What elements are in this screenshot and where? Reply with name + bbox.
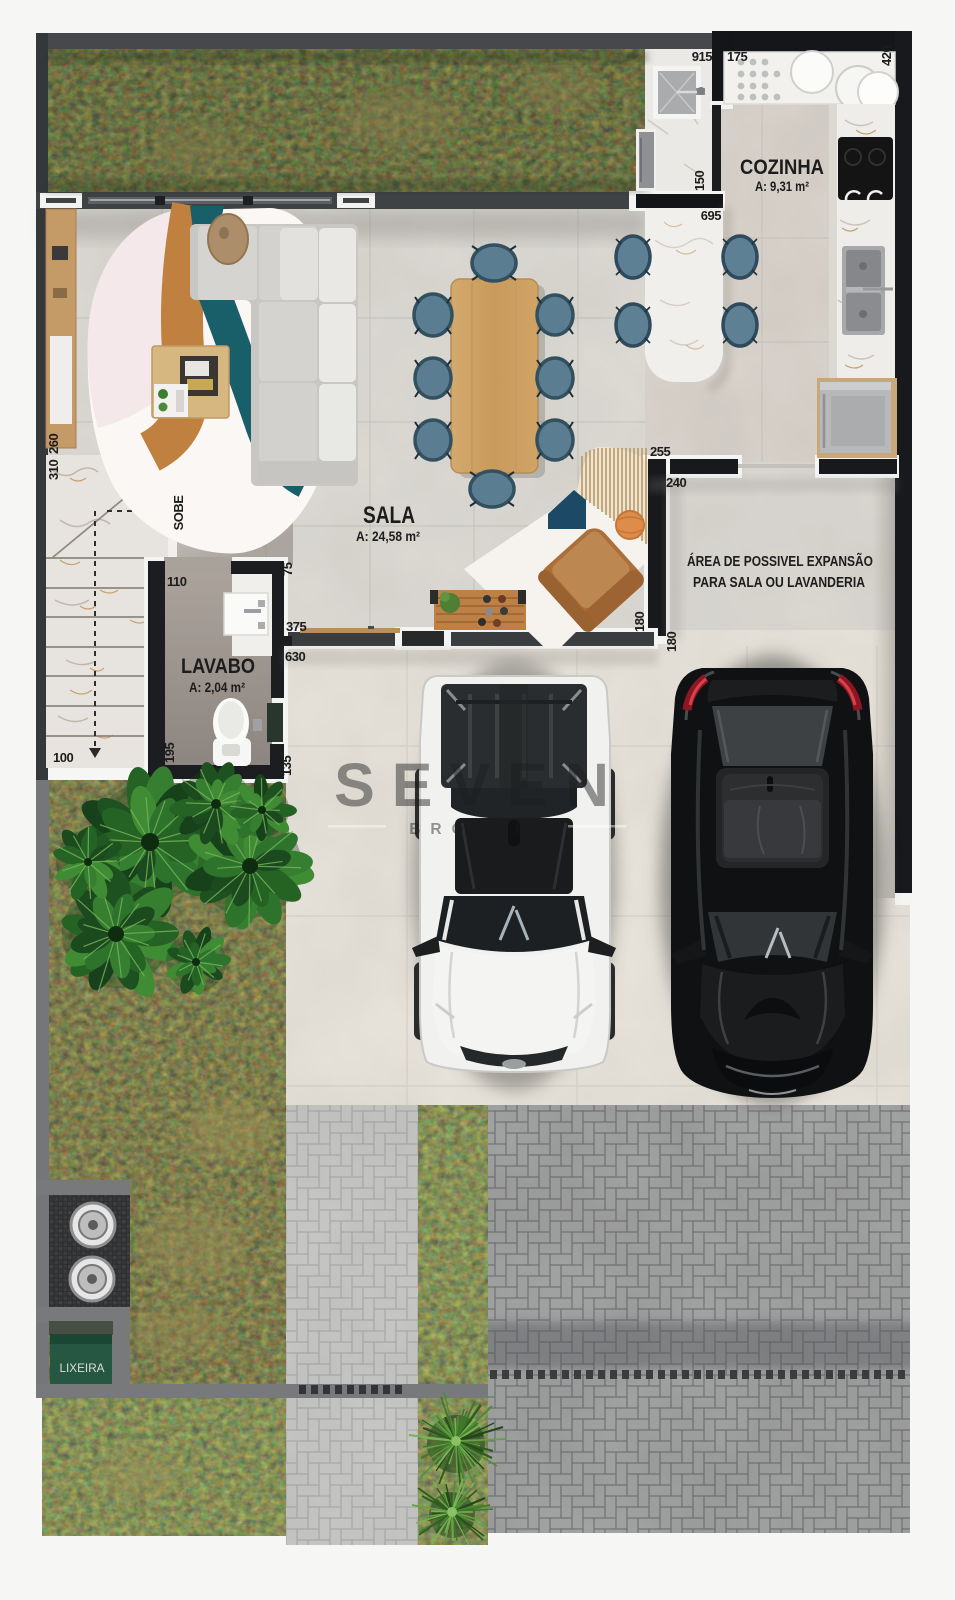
svg-text:COZINHA: COZINHA — [740, 156, 824, 179]
svg-text:180: 180 — [664, 632, 679, 652]
svg-text:BROKERS: BROKERS — [409, 821, 557, 838]
svg-text:A: 24,58 m²: A: 24,58 m² — [356, 528, 420, 544]
svg-text:310: 310 — [46, 460, 61, 480]
svg-text:A: 2,04 m²: A: 2,04 m² — [189, 680, 245, 695]
svg-text:375: 375 — [286, 619, 306, 634]
svg-text:195: 195 — [162, 743, 177, 763]
svg-text:420: 420 — [879, 46, 894, 66]
svg-text:135: 135 — [279, 756, 294, 776]
svg-text:PARA SALA OU LAVANDERIA: PARA SALA OU LAVANDERIA — [693, 575, 865, 591]
svg-text:915: 915 — [692, 49, 712, 64]
svg-text:LAVABO: LAVABO — [181, 655, 255, 678]
svg-text:SALA: SALA — [363, 502, 415, 529]
svg-text:150: 150 — [692, 171, 707, 191]
svg-text:180: 180 — [632, 612, 647, 632]
svg-text:175: 175 — [727, 49, 747, 64]
svg-text:ÁREA DE POSSIVEL EXPANSÃO: ÁREA DE POSSIVEL EXPANSÃO — [687, 552, 873, 570]
svg-text:75: 75 — [280, 562, 295, 576]
svg-text:695: 695 — [701, 208, 721, 223]
svg-text:260: 260 — [46, 434, 61, 454]
svg-text:110: 110 — [167, 574, 187, 589]
svg-text:255: 255 — [650, 444, 670, 459]
svg-text:630: 630 — [285, 649, 305, 664]
svg-text:SOBE: SOBE — [171, 495, 186, 531]
svg-text:240: 240 — [666, 475, 686, 490]
svg-text:100: 100 — [53, 750, 73, 765]
svg-text:LIXEIRA: LIXEIRA — [60, 1361, 105, 1375]
svg-text:SEVEN: SEVEN — [334, 751, 626, 819]
svg-text:A: 9,31 m²: A: 9,31 m² — [755, 179, 809, 194]
